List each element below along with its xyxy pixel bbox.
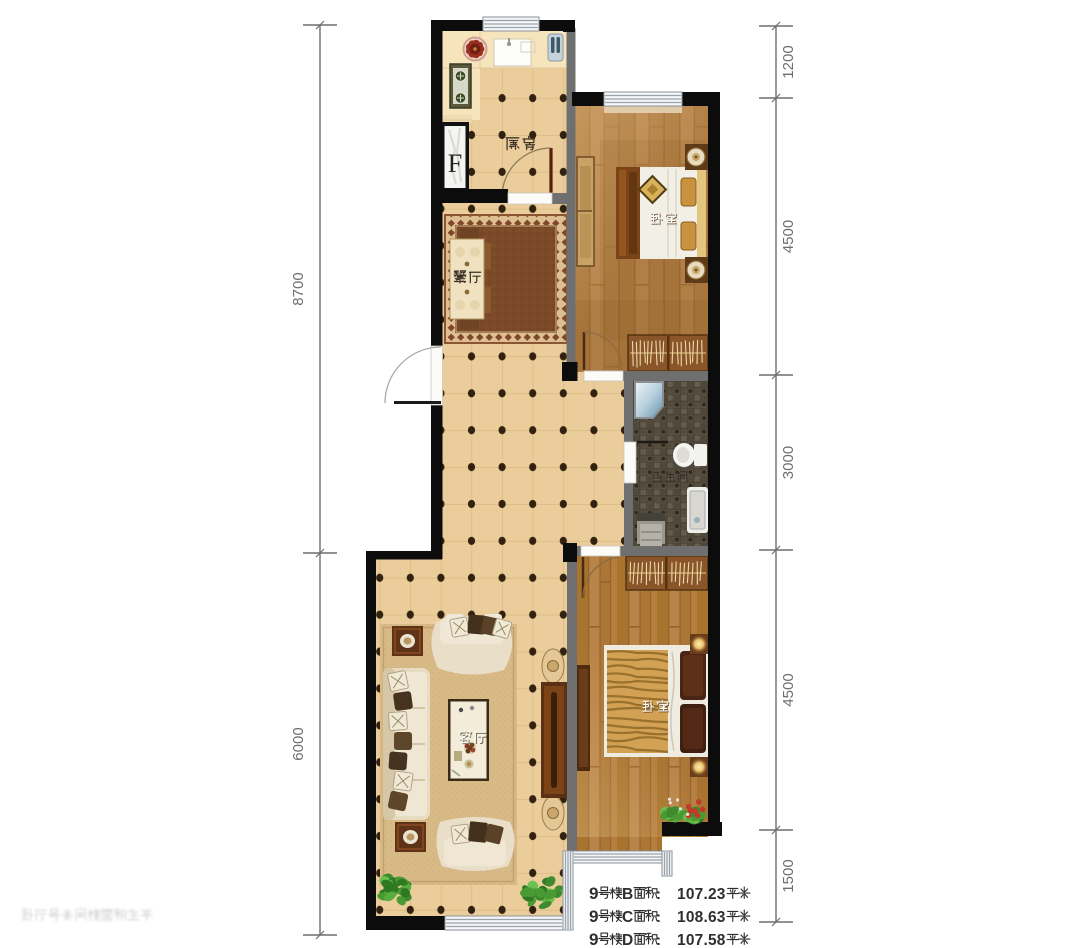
svg-text:4500: 4500 bbox=[780, 220, 797, 253]
svg-text:107.58: 107.58 bbox=[677, 932, 726, 948]
svg-text:1200: 1200 bbox=[780, 45, 797, 78]
svg-text:8700: 8700 bbox=[290, 272, 307, 305]
svg-text:108.63: 108.63 bbox=[677, 909, 726, 926]
svg-text:D: D bbox=[622, 932, 633, 948]
svg-text::: : bbox=[656, 909, 661, 926]
svg-text:C: C bbox=[622, 909, 633, 926]
svg-text:9: 9 bbox=[589, 884, 598, 903]
svg-text:1500: 1500 bbox=[780, 859, 797, 892]
svg-text::: : bbox=[656, 932, 661, 948]
svg-text::: : bbox=[656, 886, 661, 903]
svg-text:9: 9 bbox=[589, 930, 598, 948]
svg-text:6000: 6000 bbox=[290, 727, 307, 760]
svg-text:F: F bbox=[448, 149, 462, 178]
svg-text:3000: 3000 bbox=[780, 446, 797, 479]
svg-text:4500: 4500 bbox=[780, 673, 797, 706]
svg-text:107.23: 107.23 bbox=[677, 886, 726, 903]
svg-text:9: 9 bbox=[589, 907, 598, 926]
svg-text:B: B bbox=[622, 886, 633, 903]
